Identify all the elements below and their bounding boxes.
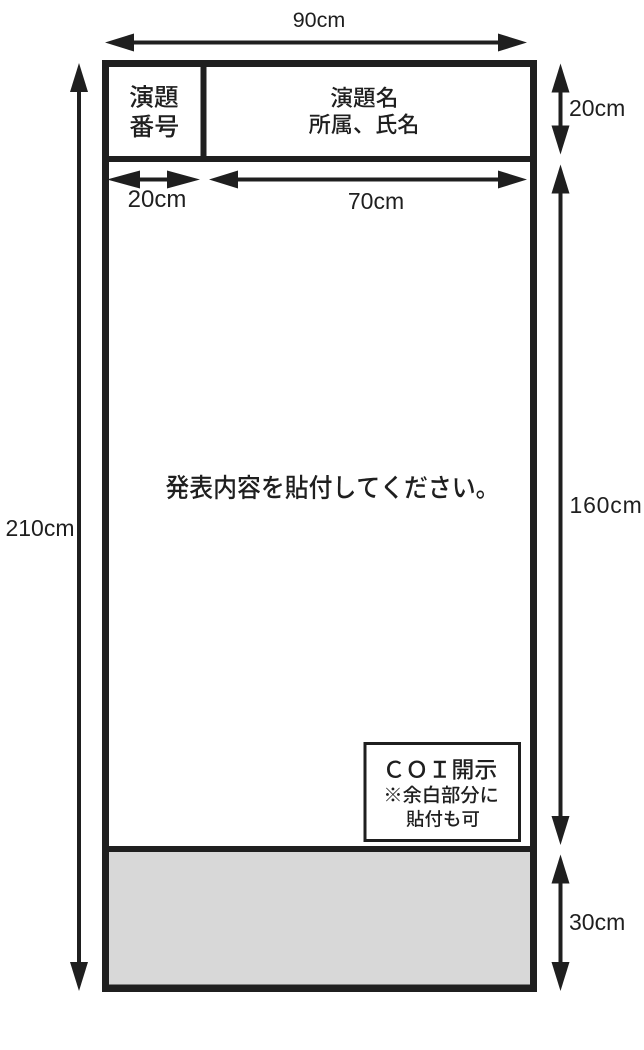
svg-text:70cm: 70cm bbox=[348, 188, 404, 214]
svg-text:30cm: 30cm bbox=[569, 909, 625, 935]
svg-text:20cm: 20cm bbox=[128, 186, 187, 213]
svg-text:210cm: 210cm bbox=[5, 515, 74, 541]
svg-text:20cm: 20cm bbox=[569, 95, 625, 121]
svg-text:160cm: 160cm bbox=[570, 492, 643, 518]
svg-text:90cm: 90cm bbox=[293, 8, 346, 32]
